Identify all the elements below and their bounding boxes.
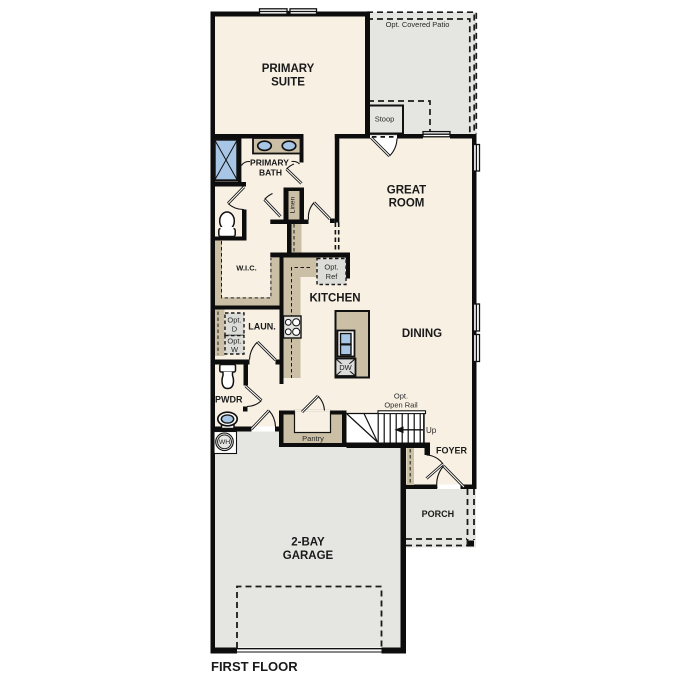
svg-text:W: W: [231, 345, 239, 354]
svg-text:PWDR: PWDR: [215, 395, 243, 405]
svg-text:BATH: BATH: [259, 167, 282, 177]
svg-text:D: D: [232, 325, 238, 334]
svg-text:W.I.C.: W.I.C.: [236, 264, 256, 273]
svg-text:WH: WH: [219, 439, 230, 446]
svg-text:Linen: Linen: [289, 196, 296, 213]
svg-text:Up: Up: [426, 426, 437, 435]
svg-text:Ref: Ref: [326, 272, 339, 281]
svg-text:Opt.: Opt.: [324, 263, 338, 272]
svg-text:Opt. Covered Patio: Opt. Covered Patio: [386, 20, 450, 29]
svg-text:2-BAY: 2-BAY: [291, 537, 325, 549]
svg-text:PRIMARY: PRIMARY: [250, 157, 289, 167]
svg-text:PRIMARY: PRIMARY: [262, 63, 315, 75]
svg-text:Open Rail: Open Rail: [384, 401, 418, 410]
svg-text:DW: DW: [339, 363, 352, 372]
svg-text:PORCH: PORCH: [422, 509, 455, 519]
svg-text:KITCHEN: KITCHEN: [309, 293, 360, 305]
svg-text:Pantry: Pantry: [302, 434, 324, 443]
svg-text:Opt.: Opt.: [394, 392, 408, 401]
svg-text:FOYER: FOYER: [436, 446, 468, 456]
svg-text:GARAGE: GARAGE: [283, 550, 334, 562]
svg-text:LAUN.: LAUN.: [248, 322, 276, 332]
svg-text:Stoop: Stoop: [375, 115, 395, 124]
svg-text:SUITE: SUITE: [271, 77, 305, 89]
svg-text:Opt.: Opt.: [227, 316, 241, 325]
svg-text:DINING: DINING: [402, 328, 442, 340]
svg-text:FIRST FLOOR: FIRST FLOOR: [211, 659, 298, 674]
svg-text:GREAT: GREAT: [387, 185, 426, 197]
svg-text:ROOM: ROOM: [389, 198, 425, 210]
